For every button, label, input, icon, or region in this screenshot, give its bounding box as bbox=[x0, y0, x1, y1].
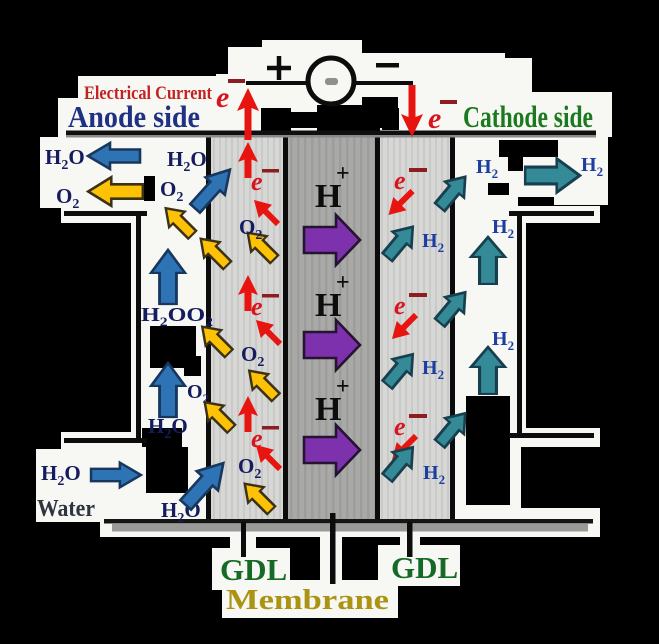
svg-text:Cathode side: Cathode side bbox=[463, 99, 593, 134]
svg-text:e: e bbox=[394, 412, 406, 441]
svg-text:+: + bbox=[336, 374, 350, 400]
svg-text:H2OO2: H2OO2 bbox=[141, 304, 213, 329]
svg-text:e: e bbox=[428, 102, 441, 135]
svg-text:e: e bbox=[216, 81, 229, 114]
svg-text:Membrane: Membrane bbox=[226, 585, 389, 616]
svg-text:e: e bbox=[251, 167, 263, 196]
svg-text:+: + bbox=[336, 161, 350, 187]
svg-text:Anode side: Anode side bbox=[68, 99, 200, 134]
svg-text:e: e bbox=[394, 166, 406, 195]
svg-text:e: e bbox=[394, 291, 406, 320]
svg-text:+: + bbox=[336, 270, 350, 296]
svg-text:Water: Water bbox=[37, 496, 95, 522]
svg-text:GDL: GDL bbox=[220, 552, 287, 587]
svg-text:e: e bbox=[251, 292, 263, 321]
svg-text:GDL: GDL bbox=[391, 550, 458, 585]
